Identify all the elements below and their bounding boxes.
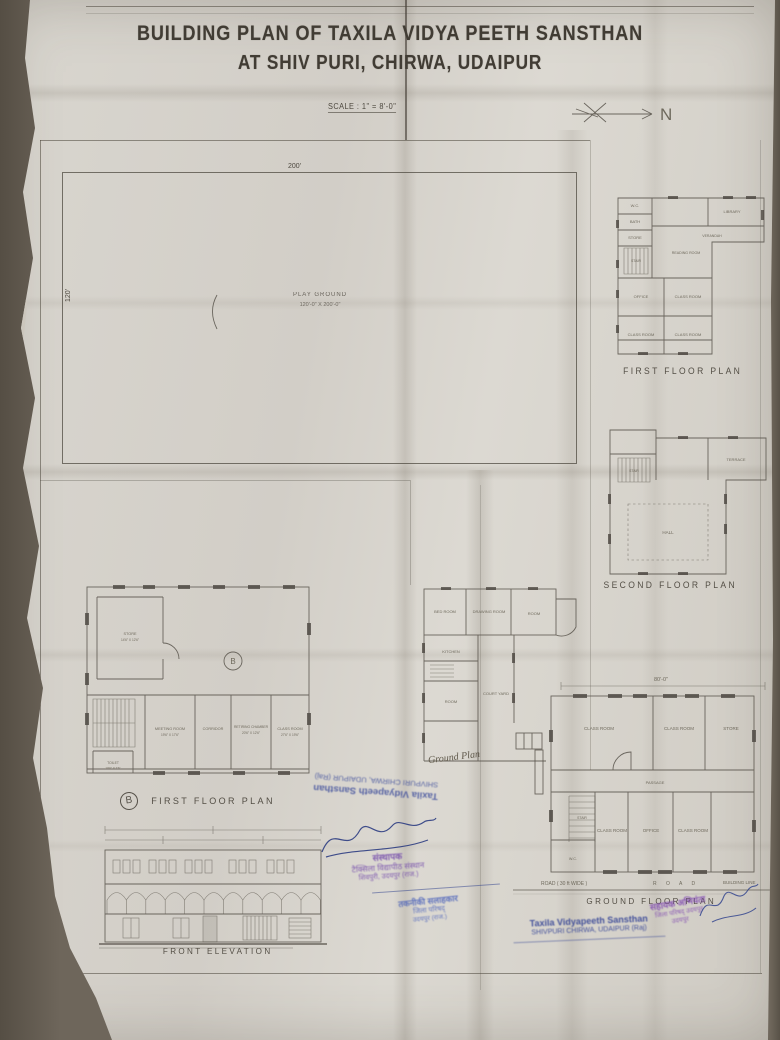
north-arrow: N <box>560 88 690 136</box>
road-label-left: ROAD ( 30 ft WIDE ) <box>541 881 587 887</box>
plan-label-front-elevation: FRONT ELEVATION <box>163 946 273 956</box>
plan-walls <box>424 589 576 761</box>
room-label: READING ROOM <box>672 251 701 255</box>
first-floor-plan-right: W.C. BATH STORE STAIR LIBRARY VERANDAH R… <box>608 190 770 362</box>
room-label: STAIR <box>631 259 642 263</box>
dimension-lines <box>105 826 321 844</box>
room-label: COURT YARD <box>483 691 509 696</box>
room-label: DRAWING ROOM <box>473 609 506 614</box>
room-label: BED ROOM <box>434 609 456 614</box>
plan-label-first-floor-right: FIRST FLOOR PLAN <box>623 366 742 376</box>
room-label: MEETING ROOM <box>155 727 185 731</box>
plan-walls <box>610 430 766 574</box>
room-label: ROOM <box>445 699 457 704</box>
room-label: ROOM <box>528 611 540 616</box>
room-label: OFFICE <box>634 294 649 299</box>
room-label: STORE <box>723 726 738 731</box>
room-size: 27'6" X 19'6" <box>281 733 299 737</box>
room-label: VERANDAH <box>702 234 722 238</box>
room-label: W.C. <box>631 203 640 208</box>
room-label: KITCHEN <box>442 649 460 654</box>
crease-vertical-1 <box>393 0 417 1040</box>
drawing-title-line1: BUILDING PLAN OF TAXILA VIDYA PEETH SANS… <box>55 22 726 46</box>
site-arc-mark <box>205 293 225 331</box>
room-label: HALL <box>662 530 674 535</box>
second-floor-plan: TERRACE HALL STAIR <box>598 424 773 584</box>
room-label: CLASS ROOM <box>628 332 655 337</box>
front-elevation <box>93 820 333 960</box>
sheet-edge-line <box>86 6 754 7</box>
room-label: STAIR <box>577 816 587 820</box>
dimension-line <box>561 682 765 690</box>
site-name: PLAY GROUND <box>260 292 380 298</box>
torn-scrap <box>0 140 18 189</box>
plan-label-second-floor: SECOND FLOOR PLAN <box>604 580 738 590</box>
room-label: OFFICE <box>643 828 660 833</box>
room-label: CLASS ROOM <box>675 294 702 299</box>
room-label: CORRIDOR <box>203 727 224 731</box>
room-label: CLASS ROOM <box>277 727 302 731</box>
room-label: STORE <box>123 632 136 636</box>
signature-strokes <box>700 884 758 922</box>
ground-floor-doors <box>123 916 311 942</box>
stair-hatch <box>430 665 454 677</box>
signature-right <box>692 878 762 926</box>
site-plan-boundary <box>62 172 577 464</box>
window-ticks <box>608 436 738 575</box>
torn-scrap <box>0 297 28 371</box>
stamp-inverted: Taxila Vidyapeeth Sansthan SHIVPURI CHIR… <box>291 770 460 803</box>
room-label: CLASS ROOM <box>675 332 702 337</box>
room-label: PASSAGE <box>646 780 665 785</box>
first-floor-plan-left: B STORE 14'6" X 12'6" MEETING ROOM 19'6"… <box>83 583 335 795</box>
window-ticks <box>85 585 311 775</box>
room-label: STAIR <box>629 469 639 473</box>
room-label: CLASS ROOM <box>664 726 694 731</box>
north-arrow-lines <box>572 103 652 122</box>
scale-note: SCALE : 1" = 8'-0" <box>328 102 396 113</box>
drawing-title-line2: AT SHIV PURI, CHIRWA, UDAIPUR <box>55 52 726 75</box>
room-label: RETIRING CHAMBER <box>234 725 269 729</box>
border-left <box>40 140 41 975</box>
site-connector-line <box>410 480 411 585</box>
upper-windows <box>113 860 294 873</box>
room-size: 20'6" X 12'6" <box>242 731 260 735</box>
room-label: STORE <box>628 235 642 240</box>
room-label: W.C. <box>569 857 577 861</box>
room-label: BATH <box>630 219 640 224</box>
border-top <box>40 140 590 141</box>
stair-hatch <box>93 699 135 747</box>
room-label: CLASS ROOM <box>597 828 627 833</box>
plan-badge: B <box>230 657 235 666</box>
north-label: N <box>660 105 672 124</box>
sheet-edge-line <box>86 13 754 14</box>
dim-label: 80'-0" <box>654 677 668 683</box>
room-label: LIBRARY <box>723 209 740 214</box>
middle-ground-plan: BED ROOM DRAWING ROOM ROOM KITCHEN ROOM … <box>396 573 591 773</box>
site-dim-left: 120' <box>65 289 72 302</box>
blueprint-paper: BUILDING PLAN OF TAXILA VIDYA PEETH SANS… <box>0 0 780 1040</box>
site-dim-top: 200' <box>288 163 301 170</box>
room-label: CLASS ROOM <box>678 828 708 833</box>
plan-label-first-floor-left: FIRST FLOOR PLAN <box>151 796 275 807</box>
arcade-arches <box>107 893 320 915</box>
site-size: 120'-0" X 200'-0" <box>260 302 380 308</box>
room-size: 10'6" X 7'6" <box>105 766 120 770</box>
room-size: 14'6" X 12'6" <box>121 638 139 642</box>
room-size: 19'6" X 17'6" <box>161 733 179 737</box>
torn-scrap <box>3 635 26 696</box>
site-south-line <box>40 480 410 481</box>
room-label: TERRACE <box>726 457 745 462</box>
plan-walls <box>87 587 309 773</box>
room-label: TOILET <box>107 761 119 765</box>
border-bottom <box>40 973 762 974</box>
